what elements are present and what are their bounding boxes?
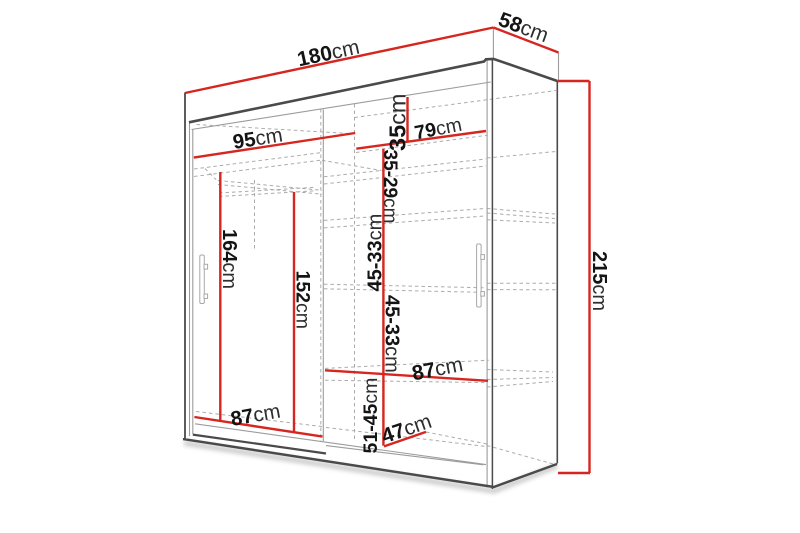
svg-text:215cm: 215cm [588,251,610,311]
svg-text:152cm: 152cm [291,271,313,330]
svg-text:51-45cm: 51-45cm [360,378,382,454]
svg-text:45-33cm: 45-33cm [381,295,403,373]
svg-text:164cm: 164cm [218,229,240,289]
svg-text:35cm: 35cm [385,94,411,151]
svg-text:45-33cm: 45-33cm [365,214,387,292]
svg-text:35-29cm: 35-29cm [379,150,400,224]
